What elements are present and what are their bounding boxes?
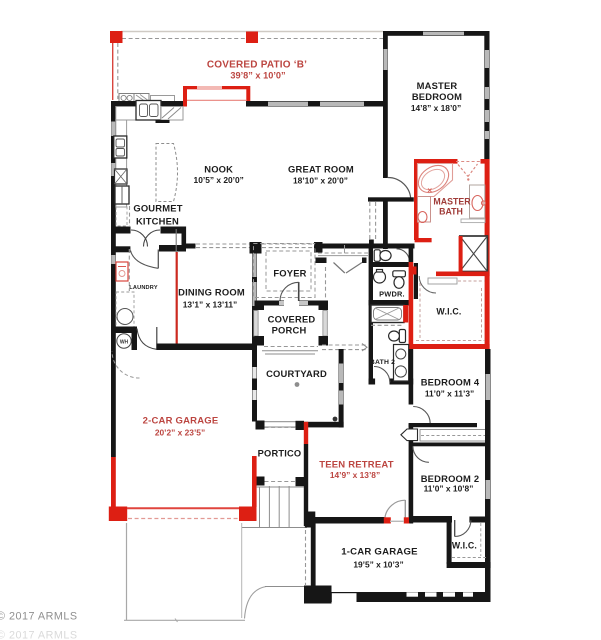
svg-text:11’0” x 11’3”: 11’0” x 11’3” [425,389,474,399]
svg-text:20’2” x 23’5”: 20’2” x 23’5” [155,428,205,438]
svg-text:39’8” x 10’0”: 39’8” x 10’0” [230,71,285,81]
svg-text:BEDROOM 4: BEDROOM 4 [421,377,480,388]
svg-text:WH: WH [120,340,129,346]
svg-text:BEDROOM 2: BEDROOM 2 [421,473,480,484]
svg-text:KITCHEN: KITCHEN [136,216,179,227]
svg-text:COVERED PATIO ‘B’: COVERED PATIO ‘B’ [207,60,307,71]
svg-text:© 2017 ARMLS: © 2017 ARMLS [0,630,78,640]
svg-text:LAUNDRY: LAUNDRY [129,285,158,291]
svg-text:COURTYARD: COURTYARD [266,368,327,379]
svg-text:1-CAR GARAGE: 1-CAR GARAGE [341,547,418,558]
svg-text:TEEN RETREAT: TEEN RETREAT [319,460,394,471]
svg-text:MASTER: MASTER [417,80,458,91]
svg-text:W.I.C.: W.I.C. [436,307,461,317]
svg-text:14’8” x 18’0”: 14’8” x 18’0” [411,103,461,113]
svg-text:14’9” x 13’8”: 14’9” x 13’8” [330,470,380,480]
svg-text:PWDR.: PWDR. [379,290,405,299]
svg-text:13’1” x 13’11”: 13’1” x 13’11” [183,300,237,310]
svg-text:PORCH: PORCH [272,325,307,336]
svg-text:FOYER: FOYER [273,268,306,279]
svg-text:GOURMET: GOURMET [133,203,182,214]
svg-text:2-CAR GARAGE: 2-CAR GARAGE [143,416,219,427]
svg-text:COVERED: COVERED [268,314,316,325]
svg-text:W.I.C.: W.I.C. [452,541,477,551]
svg-text:MASTER: MASTER [433,197,471,207]
svg-text:18’10” x 20’0”: 18’10” x 20’0” [293,176,348,186]
svg-text:10’5” x 20’0”: 10’5” x 20’0” [194,175,244,185]
svg-text:NOOK: NOOK [204,164,233,175]
svg-text:BEDROOM: BEDROOM [412,91,462,102]
svg-text:BATH 2: BATH 2 [370,359,395,366]
svg-text:DINING ROOM: DINING ROOM [178,287,245,298]
svg-text:19’5” x 10’3”: 19’5” x 10’3” [353,560,403,570]
svg-text:GREAT ROOM: GREAT ROOM [288,164,354,175]
svg-text:BATH: BATH [439,207,463,217]
svg-text:PORTICO: PORTICO [258,449,302,459]
svg-text:11’0” x 10’8”: 11’0” x 10’8” [424,484,474,494]
svg-text:© 2017 ARMLS: © 2017 ARMLS [0,611,78,623]
